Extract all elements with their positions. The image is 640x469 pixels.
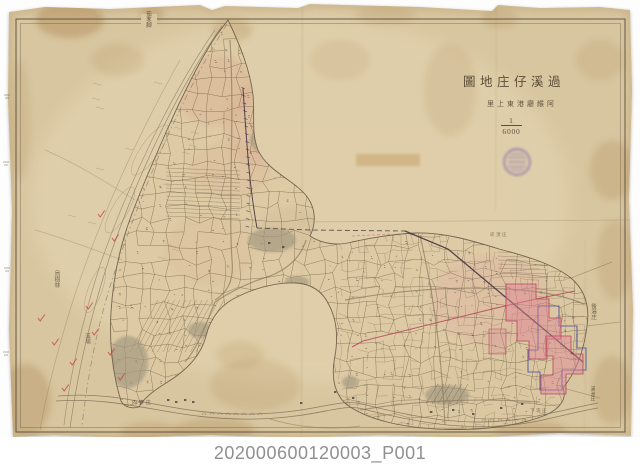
annotation-bottom-2: 下湳庄 [530,407,548,414]
annotation-inner-1: 崁頂庄 [490,231,508,238]
annotation-left-2: 溪埔 [84,332,91,345]
tape-stain [356,154,420,166]
scale-numerator: 1 [509,116,513,125]
annotation-bottom-1: 內寮庄 [132,399,153,406]
map-title: 圖地庄仔溪過 [463,74,565,89]
screenshot-root: 圖地庄仔溪過 里上東港廳緱阿 1 6000 茄苳脚 烏樹林 溪埔 後湯庄 溪洲庄… [0,0,640,469]
annotation-left-1: 烏樹林 [53,269,60,289]
scanned-map-image: 圖地庄仔溪過 里上東港廳緱阿 1 6000 茄苳脚 烏樹林 溪埔 後湯庄 溪洲庄… [0,0,640,469]
scale-denominator: 6000 [502,127,520,136]
margin-tick-marks [3,95,10,355]
map-subtitle: 里上東港廳緱阿 [487,99,557,108]
annotation-top-border: 茄苳脚 [145,10,152,29]
caption-bar: 202000600120003_P001 [0,437,640,469]
annotation-right-2: 溪洲庄 [590,385,596,402]
archive-stamp [504,149,530,175]
catalog-id: 202000600120003_P001 [214,443,426,464]
annotation-right-1: 後湯庄 [590,302,597,321]
